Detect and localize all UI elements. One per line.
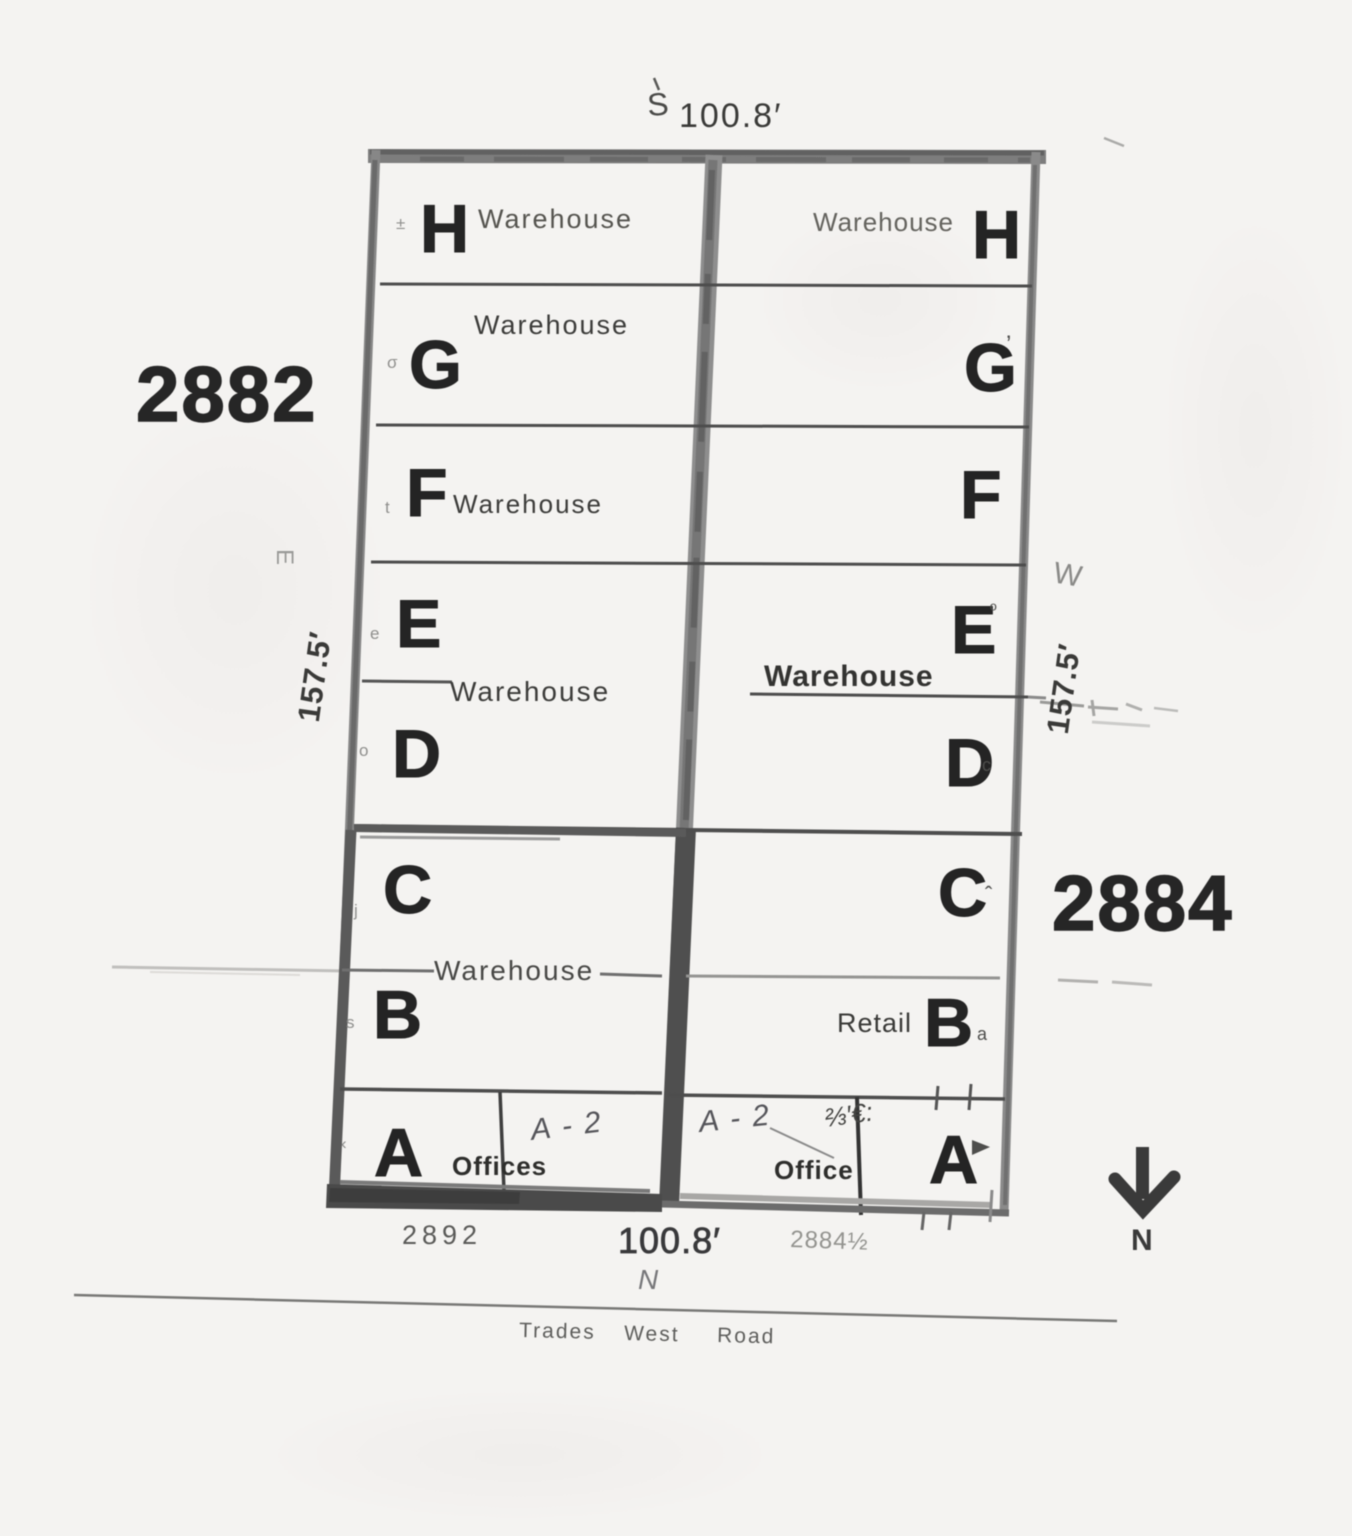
svg-text:σ: σ (387, 353, 398, 372)
svg-text:Warehouse: Warehouse (764, 660, 934, 693)
svg-text:A: A (374, 1115, 423, 1191)
svg-text:C: C (938, 855, 987, 931)
svg-text:2882: 2882 (136, 350, 318, 438)
svg-text:D: D (392, 716, 441, 792)
svg-text:100.8′: 100.8′ (618, 1220, 721, 1261)
svg-text:2884: 2884 (1052, 859, 1234, 947)
svg-text:Office: Office (774, 1155, 854, 1185)
svg-text:Warehouse: Warehouse (450, 676, 610, 707)
svg-text:E: E (271, 549, 298, 565)
svg-text:Warehouse: Warehouse (474, 310, 629, 340)
svg-text:G: G (409, 327, 462, 403)
svg-text:N: N (638, 1264, 659, 1295)
svg-text:N: N (1131, 1224, 1153, 1257)
svg-text:s: s (346, 1013, 355, 1032)
svg-text:º: º (990, 600, 997, 620)
svg-text:Road: Road (717, 1324, 776, 1348)
svg-text:a: a (977, 1024, 988, 1044)
svg-text:e: e (370, 624, 379, 643)
svg-text:S: S (646, 86, 670, 123)
svg-text:2892: 2892 (402, 1220, 482, 1250)
svg-text:Offices: Offices (452, 1151, 547, 1181)
svg-text:C: C (383, 852, 432, 928)
svg-text:H: H (972, 197, 1021, 273)
svg-text:B: B (373, 977, 422, 1053)
svg-text:B: B (924, 985, 973, 1061)
svg-text:Warehouse: Warehouse (813, 207, 954, 237)
svg-text:t: t (385, 498, 390, 517)
svg-text:j: j (353, 901, 358, 920)
svg-text:100.8′: 100.8′ (679, 97, 782, 135)
svg-text:Warehouse: Warehouse (478, 204, 633, 234)
svg-text:Trades: Trades (519, 1319, 596, 1344)
svg-text:c: c (982, 755, 991, 775)
svg-text:F: F (406, 455, 448, 531)
svg-text:2884½: 2884½ (790, 1226, 869, 1256)
svg-text:o: o (359, 741, 368, 760)
svg-text:‹: ‹ (341, 1134, 347, 1153)
svg-text:Warehouse: Warehouse (434, 955, 594, 986)
svg-text:E: E (396, 586, 441, 662)
svg-text:’: ’ (1006, 331, 1011, 358)
svg-text:Retail: Retail (837, 1008, 912, 1038)
svg-text:Warehouse: Warehouse (453, 489, 603, 519)
svg-text:H: H (420, 191, 469, 267)
svg-text:A: A (929, 1122, 978, 1198)
svg-text:F: F (960, 457, 1002, 533)
svg-text:ˆ: ˆ (985, 882, 993, 907)
svg-text:±: ± (396, 214, 405, 233)
svg-text:West: West (624, 1322, 680, 1346)
